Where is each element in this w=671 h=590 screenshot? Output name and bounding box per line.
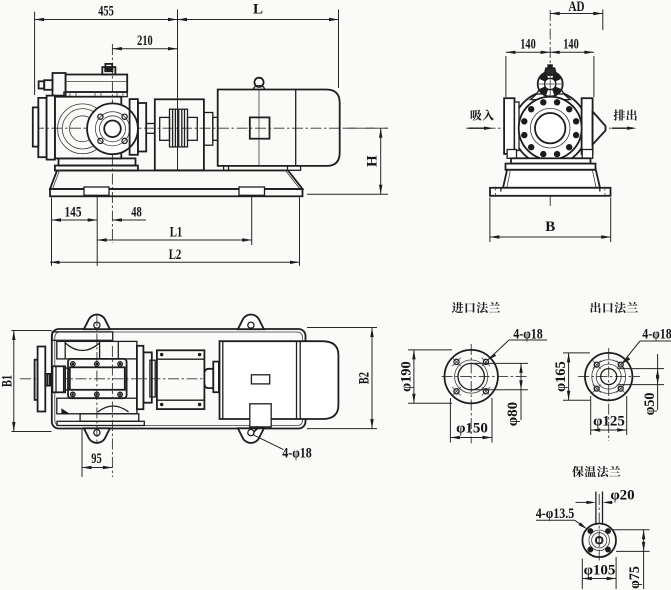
svg-text:4-φ18: 4-φ18 [513, 325, 543, 342]
svg-text:AD: AD [569, 0, 585, 15]
svg-text:145: 145 [65, 203, 82, 220]
svg-text:φ80: φ80 [505, 402, 521, 426]
svg-text:φ75: φ75 [627, 566, 644, 589]
svg-text:φ50: φ50 [642, 393, 659, 416]
svg-text:φ190: φ190 [398, 361, 414, 392]
svg-text:L: L [253, 2, 263, 18]
svg-text:140: 140 [563, 36, 578, 52]
svg-text:φ20: φ20 [610, 488, 634, 504]
svg-text:140: 140 [520, 36, 535, 52]
svg-text:210: 210 [137, 32, 152, 48]
svg-text:L1: L1 [170, 223, 183, 240]
svg-text:φ165: φ165 [553, 361, 569, 392]
svg-text:L2: L2 [169, 245, 182, 262]
svg-text:455: 455 [98, 3, 113, 19]
svg-text:4-φ13.5: 4-φ13.5 [536, 505, 575, 522]
svg-text:48: 48 [131, 203, 142, 220]
svg-text:95: 95 [91, 449, 101, 466]
svg-text:φ125: φ125 [593, 414, 625, 430]
svg-text:H: H [364, 155, 380, 167]
svg-text:4-φ18: 4-φ18 [642, 325, 671, 342]
svg-text:B1: B1 [0, 375, 15, 387]
svg-text:B2: B2 [356, 372, 372, 384]
svg-text:4-φ18: 4-φ18 [282, 444, 312, 461]
svg-text:B: B [545, 219, 555, 235]
svg-text:φ105: φ105 [584, 563, 616, 579]
svg-text:φ150: φ150 [456, 421, 488, 437]
